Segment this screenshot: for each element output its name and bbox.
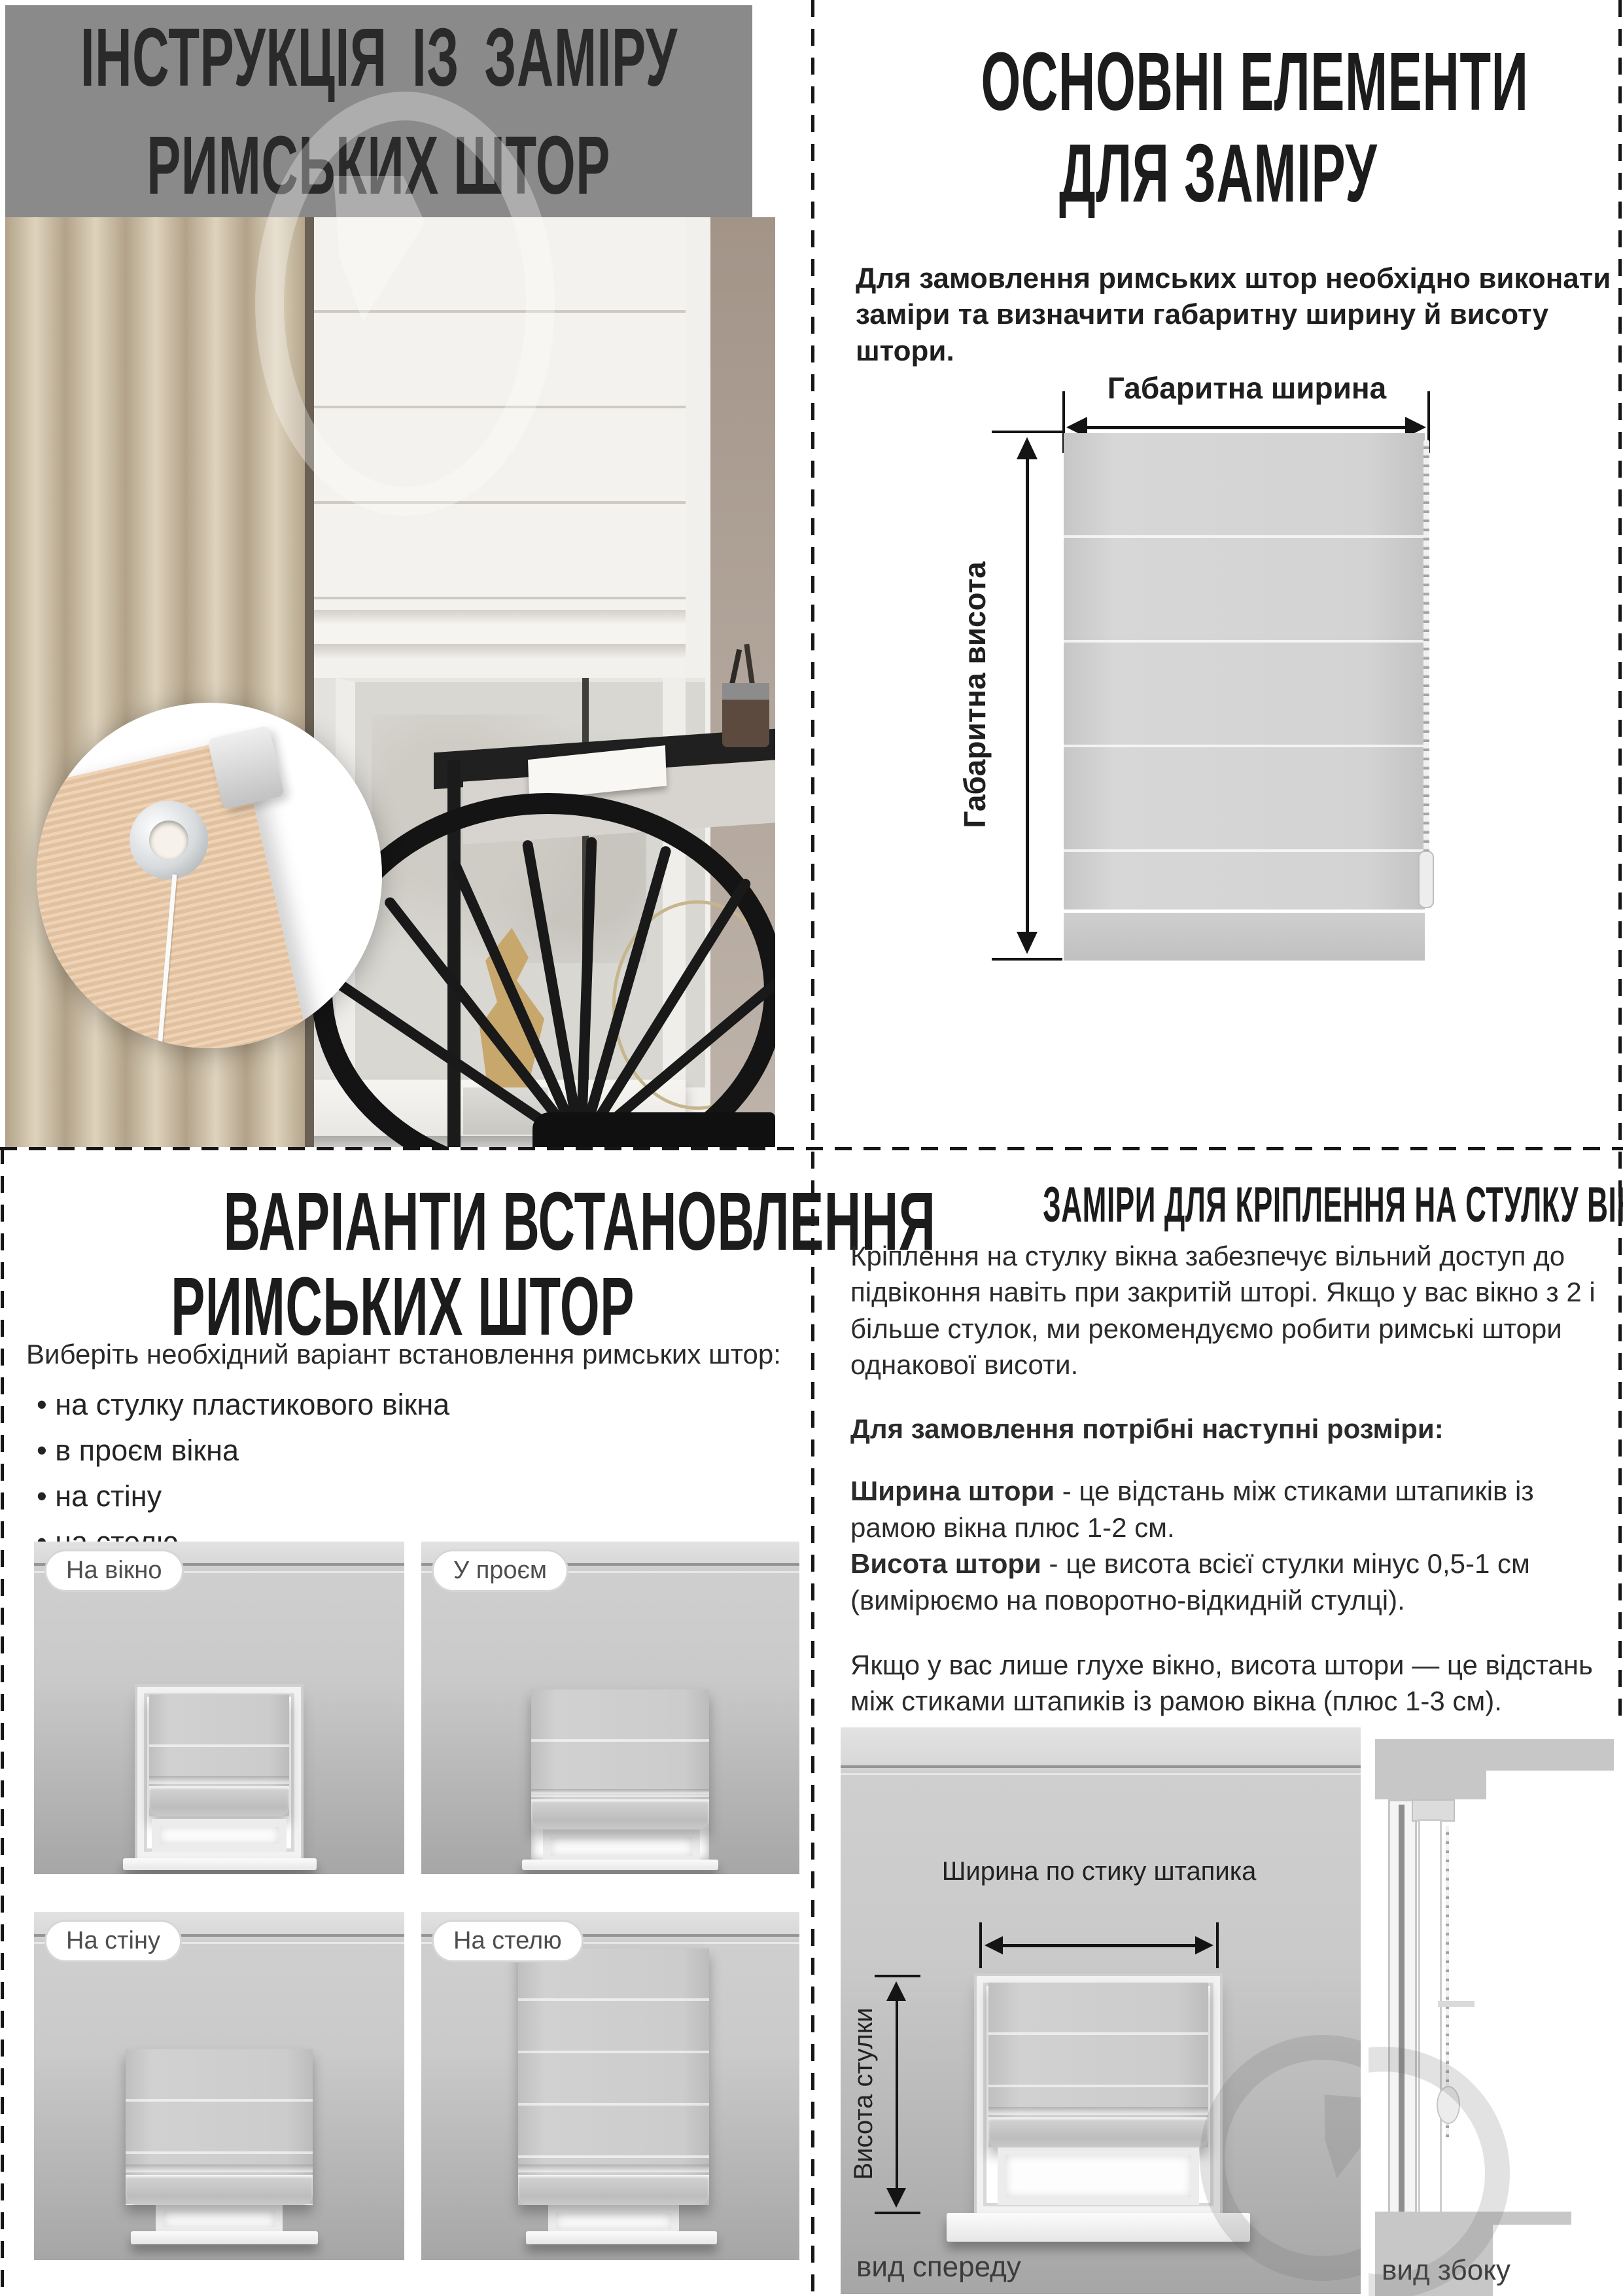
windowsill: [123, 1858, 317, 1870]
windowsill: [947, 2213, 1250, 2242]
sv-wall-top-block: [1375, 1739, 1486, 1799]
divider-vertical-left: [1, 1147, 4, 2296]
tr-title-line1: ОСНОВНІ ЕЛЕМЕНТИ: [813, 34, 1623, 129]
mounting-option: на стулку пластикового вікна: [37, 1382, 449, 1428]
height-term: Висота штори: [850, 1548, 1041, 1579]
variant-label-pill: На стелю: [432, 1920, 584, 1962]
variant-label-pill: У проєм: [432, 1549, 568, 1592]
blind-fold: [531, 1799, 709, 1829]
variant-figure-on-wall: На стіну: [34, 1912, 404, 2260]
height-tick-bottom: [992, 958, 1062, 961]
variant-label-pill: На стіну: [44, 1920, 182, 1962]
sw-tick-right: [1216, 1922, 1219, 1968]
overall-height-label: Габаритна висота: [957, 499, 992, 891]
photo-blind-fold1: [314, 610, 686, 648]
blind-diagram: [1064, 433, 1425, 961]
watermark-ring: [255, 92, 555, 516]
blind-fold: [149, 1786, 289, 1816]
mounting-option: на стіну: [37, 1474, 449, 1519]
blind-fold: [518, 2175, 709, 2205]
br-height-definition: Висота штори - це висота всієї стулки мі…: [850, 1545, 1608, 1618]
sh-arrow-line: [896, 1997, 898, 2192]
window-glass: [152, 1819, 287, 1852]
chair-spoke: [576, 877, 752, 1147]
chair-seat: [532, 1112, 775, 1147]
sw-tick-left: [979, 1922, 982, 1968]
br-width-definition: Ширина штори - це відстань між стиками ш…: [850, 1473, 1608, 1545]
photo-blind-fold2: [314, 644, 686, 678]
window-glass: [156, 2202, 283, 2235]
br-paragraph2: Якщо у вас лише глухе вікно, висота штор…: [850, 1647, 1608, 1720]
chair-spoke: [521, 839, 585, 1147]
tr-intro: Для замовлення римських штор необхідно в…: [856, 260, 1611, 369]
sw-arrow-line: [1002, 1944, 1196, 1947]
width-term: Ширина штори: [850, 1475, 1055, 1506]
sv-handle: [1438, 2001, 1475, 2007]
sash-height-label: Висота стулки: [849, 1898, 884, 2290]
blind-fold: [988, 2117, 1208, 2147]
br-title-text: ЗАМІРИ ДЛЯ КРІПЛЕННЯ НА СТУЛКУ ВІКНА: [1043, 1180, 1623, 1230]
bl-title-text2: РИМСЬКИХ ШТОР: [171, 1265, 635, 1348]
variant-figure-in-opening: У проєм: [421, 1542, 799, 1874]
tr-title-line2: ДЛЯ ЗАМІРУ: [813, 126, 1623, 221]
roman-blind: [149, 1695, 289, 1816]
measuring-instruction-sheet: ІНСТРУКЦІЯ ІЗ ЗАМІРУ РИМСЬКИХ ШТОР: [0, 0, 1623, 2296]
detail-inset-circle: [37, 703, 382, 1048]
sv-blind-bracket: [1412, 1799, 1455, 1822]
sw-arrowhead-left: [985, 1936, 1003, 1954]
pencil-cup: [722, 683, 769, 747]
br-paragraph1: Кріплення на стулку вікна забезпечує віл…: [850, 1238, 1608, 1383]
tr-title-text1: ОСНОВНІ ЕЛЕМЕНТИ: [981, 41, 1529, 123]
tr-title-text2: ДЛЯ ЗАМІРУ: [1059, 132, 1377, 215]
bl-intro: Виберіть необхідний варіант встановлення…: [26, 1339, 781, 1370]
window-glass: [543, 1829, 700, 1863]
inset-eyelet-hole: [149, 821, 188, 860]
window-glass: [998, 2147, 1199, 2205]
roman-blind: [518, 1949, 709, 2205]
bl-title-line1: ВАРІАНТИ ВСТАНОВЛЕННЯ: [5, 1174, 801, 1269]
br-title: ЗАМІРИ ДЛЯ КРІПЛЕННЯ НА СТУЛКУ ВІКНА: [813, 1176, 1623, 1233]
windowsill: [522, 1860, 718, 1870]
variant-figure-on-window: На вікно: [34, 1542, 404, 1874]
br-text-column: Кріплення на стулку вікна забезпечує віл…: [850, 1238, 1608, 1720]
chair-spokes: [398, 831, 764, 1147]
windowsill: [526, 2231, 717, 2244]
divider-horizontal: [0, 1147, 1623, 1150]
variant-label-pill: На вікно: [44, 1549, 184, 1592]
sv-wall-bottom-arm: [1493, 2212, 1571, 2225]
molding-line: [841, 1773, 1361, 1775]
roman-blind: [531, 1689, 709, 1829]
variant-figure-on-ceiling: На стелю: [421, 1912, 799, 2260]
side-view-figure: вид збоку: [1369, 1720, 1623, 2296]
sash-width-label: Ширина по стику штапика: [926, 1857, 1272, 1886]
front-view-caption: вид спереду: [856, 2251, 1021, 2284]
windowsill: [131, 2231, 318, 2244]
height-tick-top: [992, 431, 1062, 433]
overall-width-label: Габаритна ширина: [1064, 370, 1430, 406]
molding-line: [841, 1765, 1361, 1768]
main-title-text1: ІНСТРУКЦІЯ ІЗ ЗАМІРУ: [80, 16, 677, 99]
front-view-figure: Ширина по стику штапика Висота стулки ви…: [841, 1727, 1361, 2294]
sw-arrowhead-right: [1195, 1936, 1213, 1954]
roman-blind: [126, 2049, 313, 2205]
width-arrow-line: [1085, 426, 1408, 429]
br-sizes-lead: Для замовлення потрібні наступні розміри…: [850, 1411, 1608, 1447]
blind-chain: [1423, 440, 1429, 898]
roman-blind: [988, 1983, 1208, 2147]
height-arrow-line: [1026, 454, 1029, 937]
blind-chain-pull: [1418, 851, 1434, 908]
mounting-options-list: на стулку пластикового вікна в проєм вік…: [37, 1382, 449, 1565]
mounting-option: в проєм вікна: [37, 1428, 449, 1474]
blind-fold: [126, 2175, 313, 2205]
main-title-line1: ІНСТРУКЦІЯ ІЗ ЗАМІРУ: [0, 10, 860, 105]
